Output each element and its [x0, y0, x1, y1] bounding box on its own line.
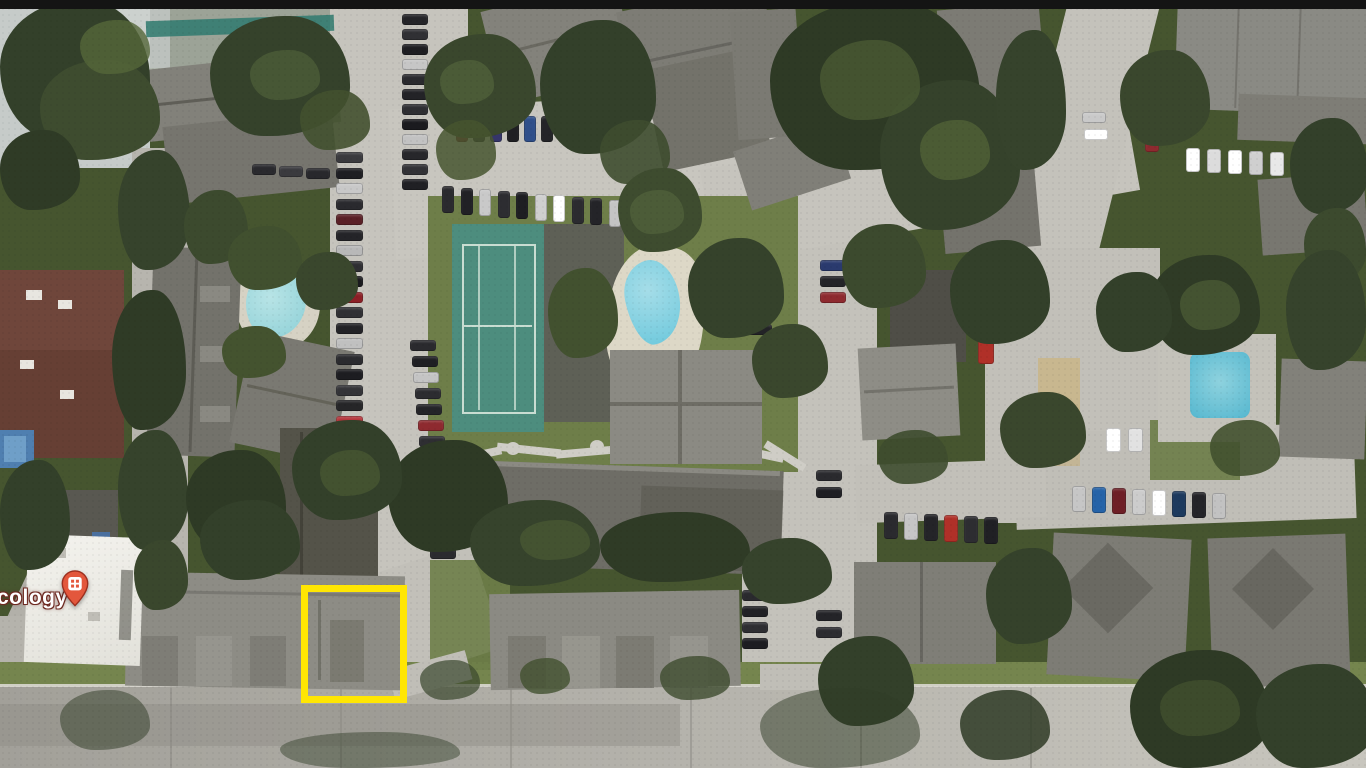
tree-canopy: [1310, 686, 1366, 736]
parked-car: [553, 195, 565, 222]
parked-car: [964, 516, 978, 543]
property-highlight-box: [301, 585, 407, 703]
parked-car: [1152, 490, 1166, 516]
roof-gable: [196, 636, 232, 686]
blue-tarp: [4, 436, 26, 462]
parked-car: [1092, 487, 1106, 513]
building-roof: [1278, 359, 1366, 460]
tree-highlight: [1180, 280, 1240, 330]
building-place-pin-icon[interactable]: [61, 570, 89, 612]
parked-car: [1228, 150, 1242, 174]
parked-car: [1172, 491, 1186, 517]
parked-car: [402, 179, 428, 190]
tree-canopy: [878, 430, 948, 484]
parked-car: [402, 164, 428, 175]
parked-car: [1207, 149, 1221, 173]
tree-shadow: [60, 690, 150, 750]
tree-highlight: [630, 190, 684, 234]
tree-canopy: [842, 224, 926, 308]
tree-highlight: [520, 520, 590, 560]
tree-canopy: [600, 512, 750, 582]
tree-canopy: [1286, 250, 1366, 370]
parked-car: [415, 388, 441, 399]
parked-car: [402, 44, 428, 55]
tree-canopy: [742, 538, 832, 604]
tree-canopy: [688, 238, 784, 338]
parked-car: [820, 276, 846, 287]
roof-gable: [250, 636, 286, 686]
parked-car: [742, 638, 768, 649]
parked-car: [1106, 428, 1121, 452]
tree-shadow: [760, 688, 920, 768]
roof-vent: [20, 360, 34, 369]
expansion-joint: [690, 688, 692, 768]
tree-canopy: [1290, 118, 1366, 214]
tree-canopy: [1096, 272, 1172, 352]
tennis-service-line: [514, 244, 516, 410]
aerial-map-canvas[interactable]: cology: [0, 0, 1366, 768]
tree-highlight: [920, 120, 990, 180]
building-shadow: [119, 570, 133, 640]
parked-car: [1072, 486, 1086, 512]
parked-car: [816, 487, 842, 498]
parked-car: [535, 194, 547, 221]
parked-car: [572, 197, 584, 224]
parked-car: [984, 517, 998, 544]
tree-highlight: [80, 20, 150, 74]
parked-car: [1212, 493, 1226, 519]
parked-car: [279, 166, 303, 177]
parked-car: [904, 513, 918, 540]
roof-dormer: [200, 406, 230, 422]
parked-car: [516, 192, 528, 219]
tree-canopy: [548, 268, 618, 358]
tree-canopy: [228, 226, 302, 290]
tree-canopy: [118, 150, 190, 270]
parked-car: [1249, 151, 1263, 175]
roof-ridge: [920, 562, 923, 662]
parked-car: [336, 152, 363, 163]
parked-car: [1128, 428, 1143, 452]
tree-canopy: [752, 324, 828, 398]
building-roof: [610, 350, 762, 464]
tree-canopy: [420, 660, 480, 700]
parked-car: [412, 356, 438, 367]
parked-car: [590, 198, 602, 225]
tree-shadow: [280, 732, 460, 768]
roof-vent: [58, 300, 72, 309]
swimming-pool: [1190, 352, 1250, 418]
walking-path-node: [506, 442, 520, 455]
parked-car: [336, 230, 363, 241]
parked-car: [402, 29, 428, 40]
expansion-joint: [510, 688, 512, 768]
tree-highlight: [320, 450, 380, 496]
parked-car: [306, 168, 330, 179]
parked-car: [252, 164, 276, 175]
parked-car: [336, 183, 363, 194]
tree-canopy: [222, 326, 286, 378]
parked-car: [336, 369, 363, 380]
roof-vent: [26, 290, 42, 300]
tree-canopy: [300, 90, 370, 150]
tree-canopy: [0, 460, 70, 570]
tree-canopy: [200, 500, 300, 580]
parked-car: [336, 400, 363, 411]
tree-canopy: [960, 690, 1050, 760]
parked-car: [816, 627, 842, 638]
tree-canopy: [520, 658, 570, 694]
tennis-net-line: [462, 325, 532, 327]
parked-car: [402, 149, 428, 160]
parked-car: [336, 323, 363, 334]
parked-car: [336, 199, 363, 210]
parked-car: [884, 512, 898, 539]
parked-car: [742, 622, 768, 633]
parked-car: [816, 470, 842, 481]
tree-canopy: [134, 540, 188, 610]
tree-canopy: [660, 656, 730, 700]
parked-car: [402, 59, 428, 70]
parked-car: [1112, 488, 1126, 514]
parked-car: [418, 420, 444, 431]
parked-car: [820, 292, 846, 303]
parked-car: [402, 119, 428, 130]
tree-highlight: [440, 60, 494, 104]
tennis-service-line: [478, 244, 480, 410]
tree-highlight: [250, 50, 320, 100]
parked-car: [336, 307, 363, 318]
parked-car: [336, 354, 363, 365]
tree-canopy: [996, 30, 1066, 170]
parked-car: [924, 514, 938, 541]
tree-canopy: [986, 548, 1072, 644]
letterbox-bar: [0, 0, 1366, 9]
tree-highlight: [820, 40, 920, 120]
parked-car: [1270, 152, 1284, 176]
roof-ridge: [610, 402, 762, 406]
parked-car: [461, 188, 473, 215]
tree-canopy: [112, 290, 186, 430]
parked-car: [1186, 148, 1200, 172]
tree-canopy: [118, 430, 188, 550]
parked-car: [336, 338, 363, 349]
parked-car: [336, 168, 363, 179]
parked-car: [479, 189, 491, 216]
tree-canopy: [436, 120, 496, 180]
roof-vent: [60, 390, 74, 399]
tennis-court-lines: [462, 244, 536, 414]
parked-car: [524, 116, 536, 142]
tree-canopy: [950, 240, 1050, 344]
parked-car: [413, 372, 439, 383]
parked-car: [402, 14, 428, 25]
roof-dormer: [200, 286, 230, 302]
parked-car: [416, 404, 442, 415]
roof-gable: [142, 636, 178, 686]
parked-car: [944, 515, 958, 542]
parked-car: [402, 104, 428, 115]
parked-car: [498, 191, 510, 218]
parked-car: [742, 606, 768, 617]
place-label-partial[interactable]: cology: [0, 586, 68, 610]
expansion-joint: [170, 688, 172, 768]
parked-car: [336, 214, 363, 225]
parked-car: [410, 340, 436, 351]
tree-canopy: [296, 252, 358, 310]
roof-gable: [616, 636, 654, 688]
roof-ridge: [678, 350, 682, 464]
tree-canopy: [0, 130, 80, 210]
parked-car: [1192, 492, 1206, 518]
tree-canopy: [1000, 392, 1086, 468]
parked-car: [1084, 129, 1108, 140]
tree-canopy: [1120, 50, 1210, 146]
tree-canopy: [1210, 420, 1280, 476]
walking-path-node: [590, 440, 604, 453]
parked-car: [336, 385, 363, 396]
parked-car: [816, 610, 842, 621]
parked-car: [1082, 112, 1106, 123]
parked-car: [442, 186, 454, 213]
tree-highlight: [1160, 680, 1240, 736]
parked-car: [402, 134, 428, 145]
roof-vent: [88, 612, 100, 621]
parked-car: [1132, 489, 1146, 515]
